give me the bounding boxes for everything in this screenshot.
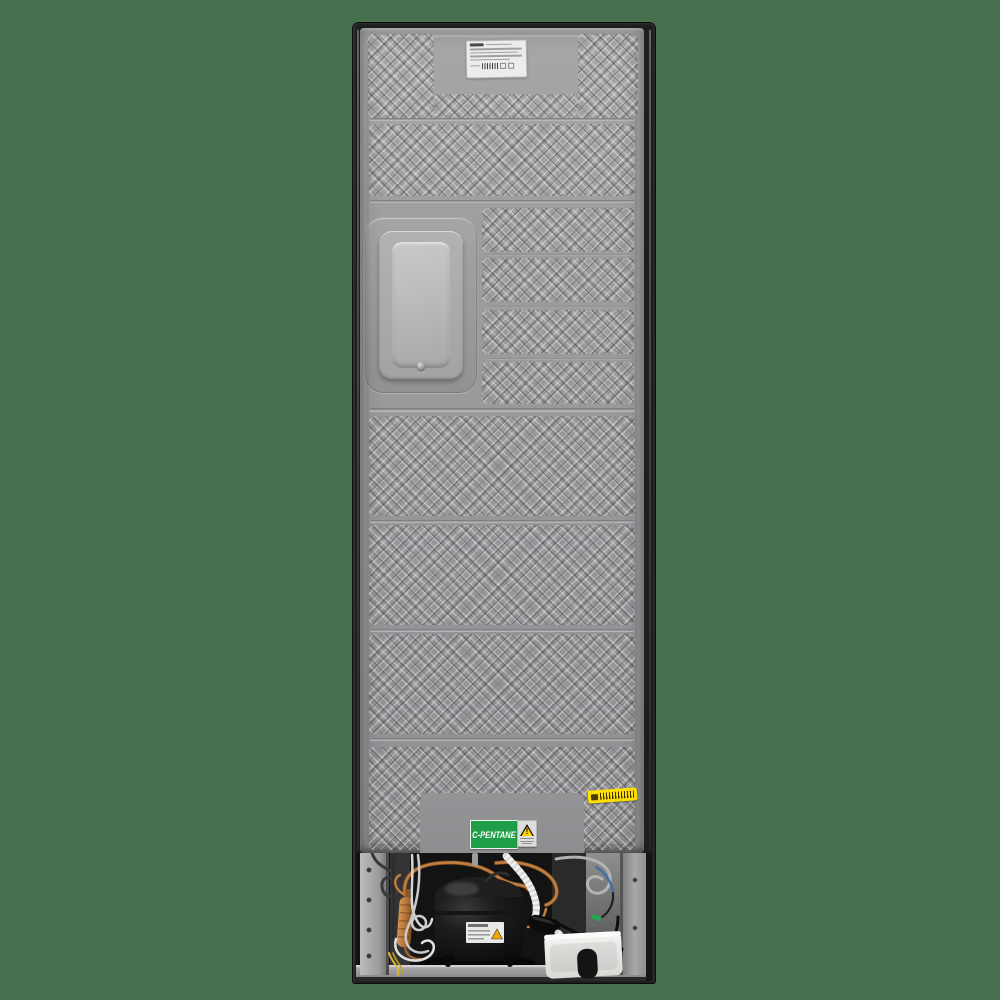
warning-sticker: ! (517, 820, 537, 847)
panel-ridge (486, 306, 630, 308)
barcode-sticker-bars (600, 791, 634, 800)
rating-plate-line (470, 58, 510, 60)
compressor-label (466, 922, 504, 943)
access-panel-screw (417, 362, 425, 370)
panel-ridge (370, 738, 634, 741)
compartment-illustration (356, 853, 652, 981)
compressor (435, 873, 523, 967)
compressor-label-header (468, 924, 488, 927)
evaporator-access-panel (365, 217, 477, 393)
panel-ridge (370, 629, 634, 632)
rating-plate-line (486, 43, 512, 45)
tray-notch (577, 948, 599, 979)
evaporation-tray (544, 931, 623, 981)
rating-plate-barcode (482, 63, 498, 69)
hatch-top-center-strip (434, 94, 578, 118)
right-frame-strip (646, 853, 652, 981)
compressor-label-line (468, 930, 490, 932)
hatch-band (369, 416, 635, 516)
hatch-top-left (368, 34, 434, 118)
warning-sticker-text-lines (520, 838, 534, 844)
refrigerant-label-text: C-PENTANE (472, 830, 516, 840)
screw (367, 868, 372, 873)
hatch-band-right (482, 362, 634, 404)
right-wall (622, 853, 648, 975)
screw (367, 898, 372, 903)
hatch-band (369, 124, 635, 196)
mounting-bolt (507, 961, 513, 967)
barcode-sticker-textblock (591, 794, 598, 800)
hatch-band-right (482, 258, 634, 302)
mounting-bolt (445, 961, 451, 967)
warning-triangle-icon: ! (520, 824, 534, 836)
product-photo-stage: C-PENTANE ! (0, 0, 1000, 1000)
back-panel: C-PENTANE ! (360, 28, 644, 853)
hatch-top-right (578, 34, 638, 118)
rating-plate-line (470, 48, 522, 50)
suction-pipe-stub (472, 853, 478, 866)
panel-ridge (369, 408, 635, 412)
panel-ridge (486, 358, 630, 360)
screw (633, 926, 637, 930)
screw (367, 928, 372, 933)
rating-plate-line (470, 55, 522, 57)
access-panel-bulge (392, 242, 450, 368)
panel-ridge (370, 520, 634, 523)
rating-plate-line (470, 65, 480, 67)
refrigerator-back: C-PENTANE ! (352, 22, 656, 984)
certification-mark (500, 62, 506, 68)
hatch-band-right (482, 208, 634, 252)
warning-exclamation-icon: ! (522, 827, 533, 837)
left-bracket (360, 853, 388, 975)
brand-logo-mark (470, 43, 484, 46)
right-side-edge (649, 30, 651, 850)
rating-plate-line (470, 51, 518, 53)
access-panel-pad (379, 231, 463, 379)
compressor-label-line (468, 938, 484, 940)
rating-plate-label (466, 39, 528, 78)
compressor-seam (435, 911, 523, 915)
panel-ridge (486, 254, 630, 256)
certification-mark (508, 62, 514, 68)
compressor-compartment (356, 853, 652, 981)
base-sill-shadow (356, 977, 652, 981)
screw (367, 954, 372, 959)
screw (633, 878, 637, 882)
hatch-band-right (482, 310, 634, 354)
left-side-edge (357, 30, 359, 850)
refrigerant-label: C-PENTANE (470, 820, 518, 849)
compressor-highlight (445, 882, 479, 896)
hatch-band (369, 634, 635, 734)
panel-ridge (370, 118, 634, 121)
panel-ridge (370, 200, 634, 203)
compressor-label-line (468, 934, 490, 936)
rating-plate-footer (470, 62, 523, 70)
hatch-band (369, 525, 635, 625)
rating-plate-header (470, 43, 523, 47)
